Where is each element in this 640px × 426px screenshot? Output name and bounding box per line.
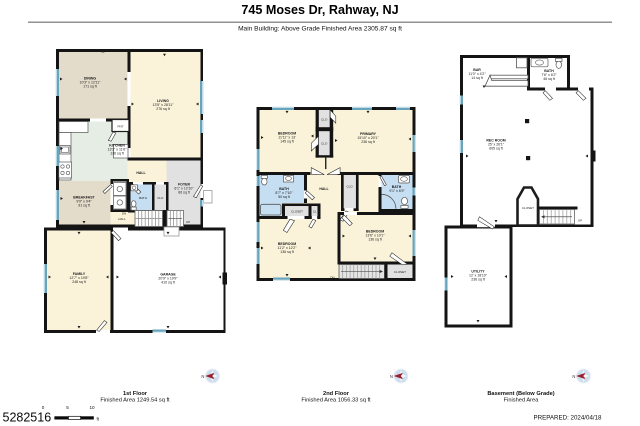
svg-text:BATH: BATH — [139, 196, 147, 200]
svg-text:2nd Floor: 2nd Floor — [323, 391, 350, 397]
svg-text:CLO: CLO — [321, 142, 328, 146]
svg-text:HALL: HALL — [118, 217, 126, 221]
svg-text:CLO: CLO — [346, 185, 353, 189]
svg-text:UP: UP — [186, 220, 190, 224]
svg-text:DN: DN — [330, 275, 334, 279]
svg-text:5: 5 — [66, 405, 69, 410]
svg-text:CLO: CLO — [321, 118, 328, 122]
svg-text:CLOSET: CLOSET — [291, 210, 303, 214]
svg-text:745 Moses Dr, Rahway, NJ: 745 Moses Dr, Rahway, NJ — [241, 3, 398, 17]
svg-text:10: 10 — [89, 405, 95, 410]
svg-text:CLOSET: CLOSET — [394, 270, 406, 274]
svg-text:5282516: 5282516 — [3, 410, 52, 424]
svg-text:BEDROOM11'11" x 13'145 sq ft: BEDROOM11'11" x 13'145 sq ft — [278, 132, 296, 144]
svg-text:HALL: HALL — [136, 171, 146, 175]
svg-text:CLO: CLO — [157, 196, 164, 200]
svg-text:CLOSET: CLOSET — [522, 206, 534, 210]
svg-text:N: N — [390, 374, 393, 379]
svg-text:CL: CL — [313, 210, 317, 214]
svg-text:0: 0 — [42, 405, 45, 410]
svg-text:UP: UP — [578, 219, 582, 223]
svg-text:N: N — [572, 374, 575, 379]
svg-text:HALL: HALL — [319, 187, 329, 191]
svg-text:N: N — [201, 374, 204, 379]
svg-text:Finished Area: Finished Area — [504, 397, 540, 403]
svg-text:PREPARED: 2024/04/18: PREPARED: 2024/04/18 — [534, 414, 603, 421]
svg-text:Finished Area 1249.54 sq ft: Finished Area 1249.54 sq ft — [100, 397, 170, 403]
svg-text:Basement (Below Grade): Basement (Below Grade) — [487, 391, 554, 397]
svg-text:Finished Area 1056.33 sq ft: Finished Area 1056.33 sq ft — [301, 397, 371, 403]
svg-text:PNT: PNT — [118, 124, 124, 128]
svg-text:1st Floor: 1st Floor — [123, 391, 148, 397]
svg-text:DN: DN — [122, 212, 126, 216]
svg-text:Main Building: Above Grade Fin: Main Building: Above Grade Finished Area… — [238, 26, 402, 33]
